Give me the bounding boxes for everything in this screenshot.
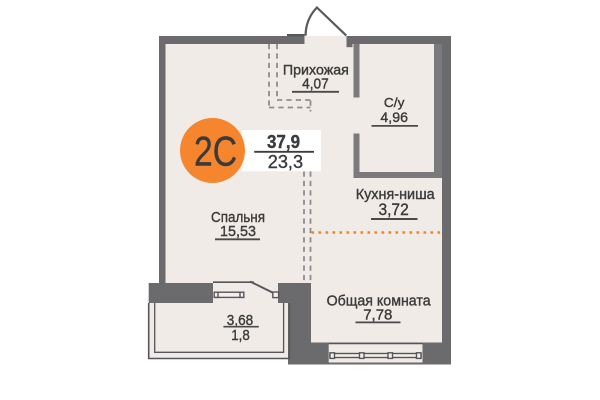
svg-text:2C: 2C	[194, 128, 237, 175]
svg-text:4,07: 4,07	[302, 77, 329, 93]
svg-text:15,53: 15,53	[220, 223, 256, 240]
svg-text:Прихожая: Прихожая	[283, 63, 349, 78]
svg-text:3,72: 3,72	[378, 201, 408, 219]
svg-text:23,3: 23,3	[268, 151, 303, 172]
svg-text:С/у: С/у	[384, 95, 405, 110]
svg-text:1,8: 1,8	[231, 328, 250, 344]
svg-text:7,78: 7,78	[363, 307, 392, 324]
svg-text:4,96: 4,96	[380, 110, 408, 125]
svg-text:37,9: 37,9	[267, 131, 300, 152]
